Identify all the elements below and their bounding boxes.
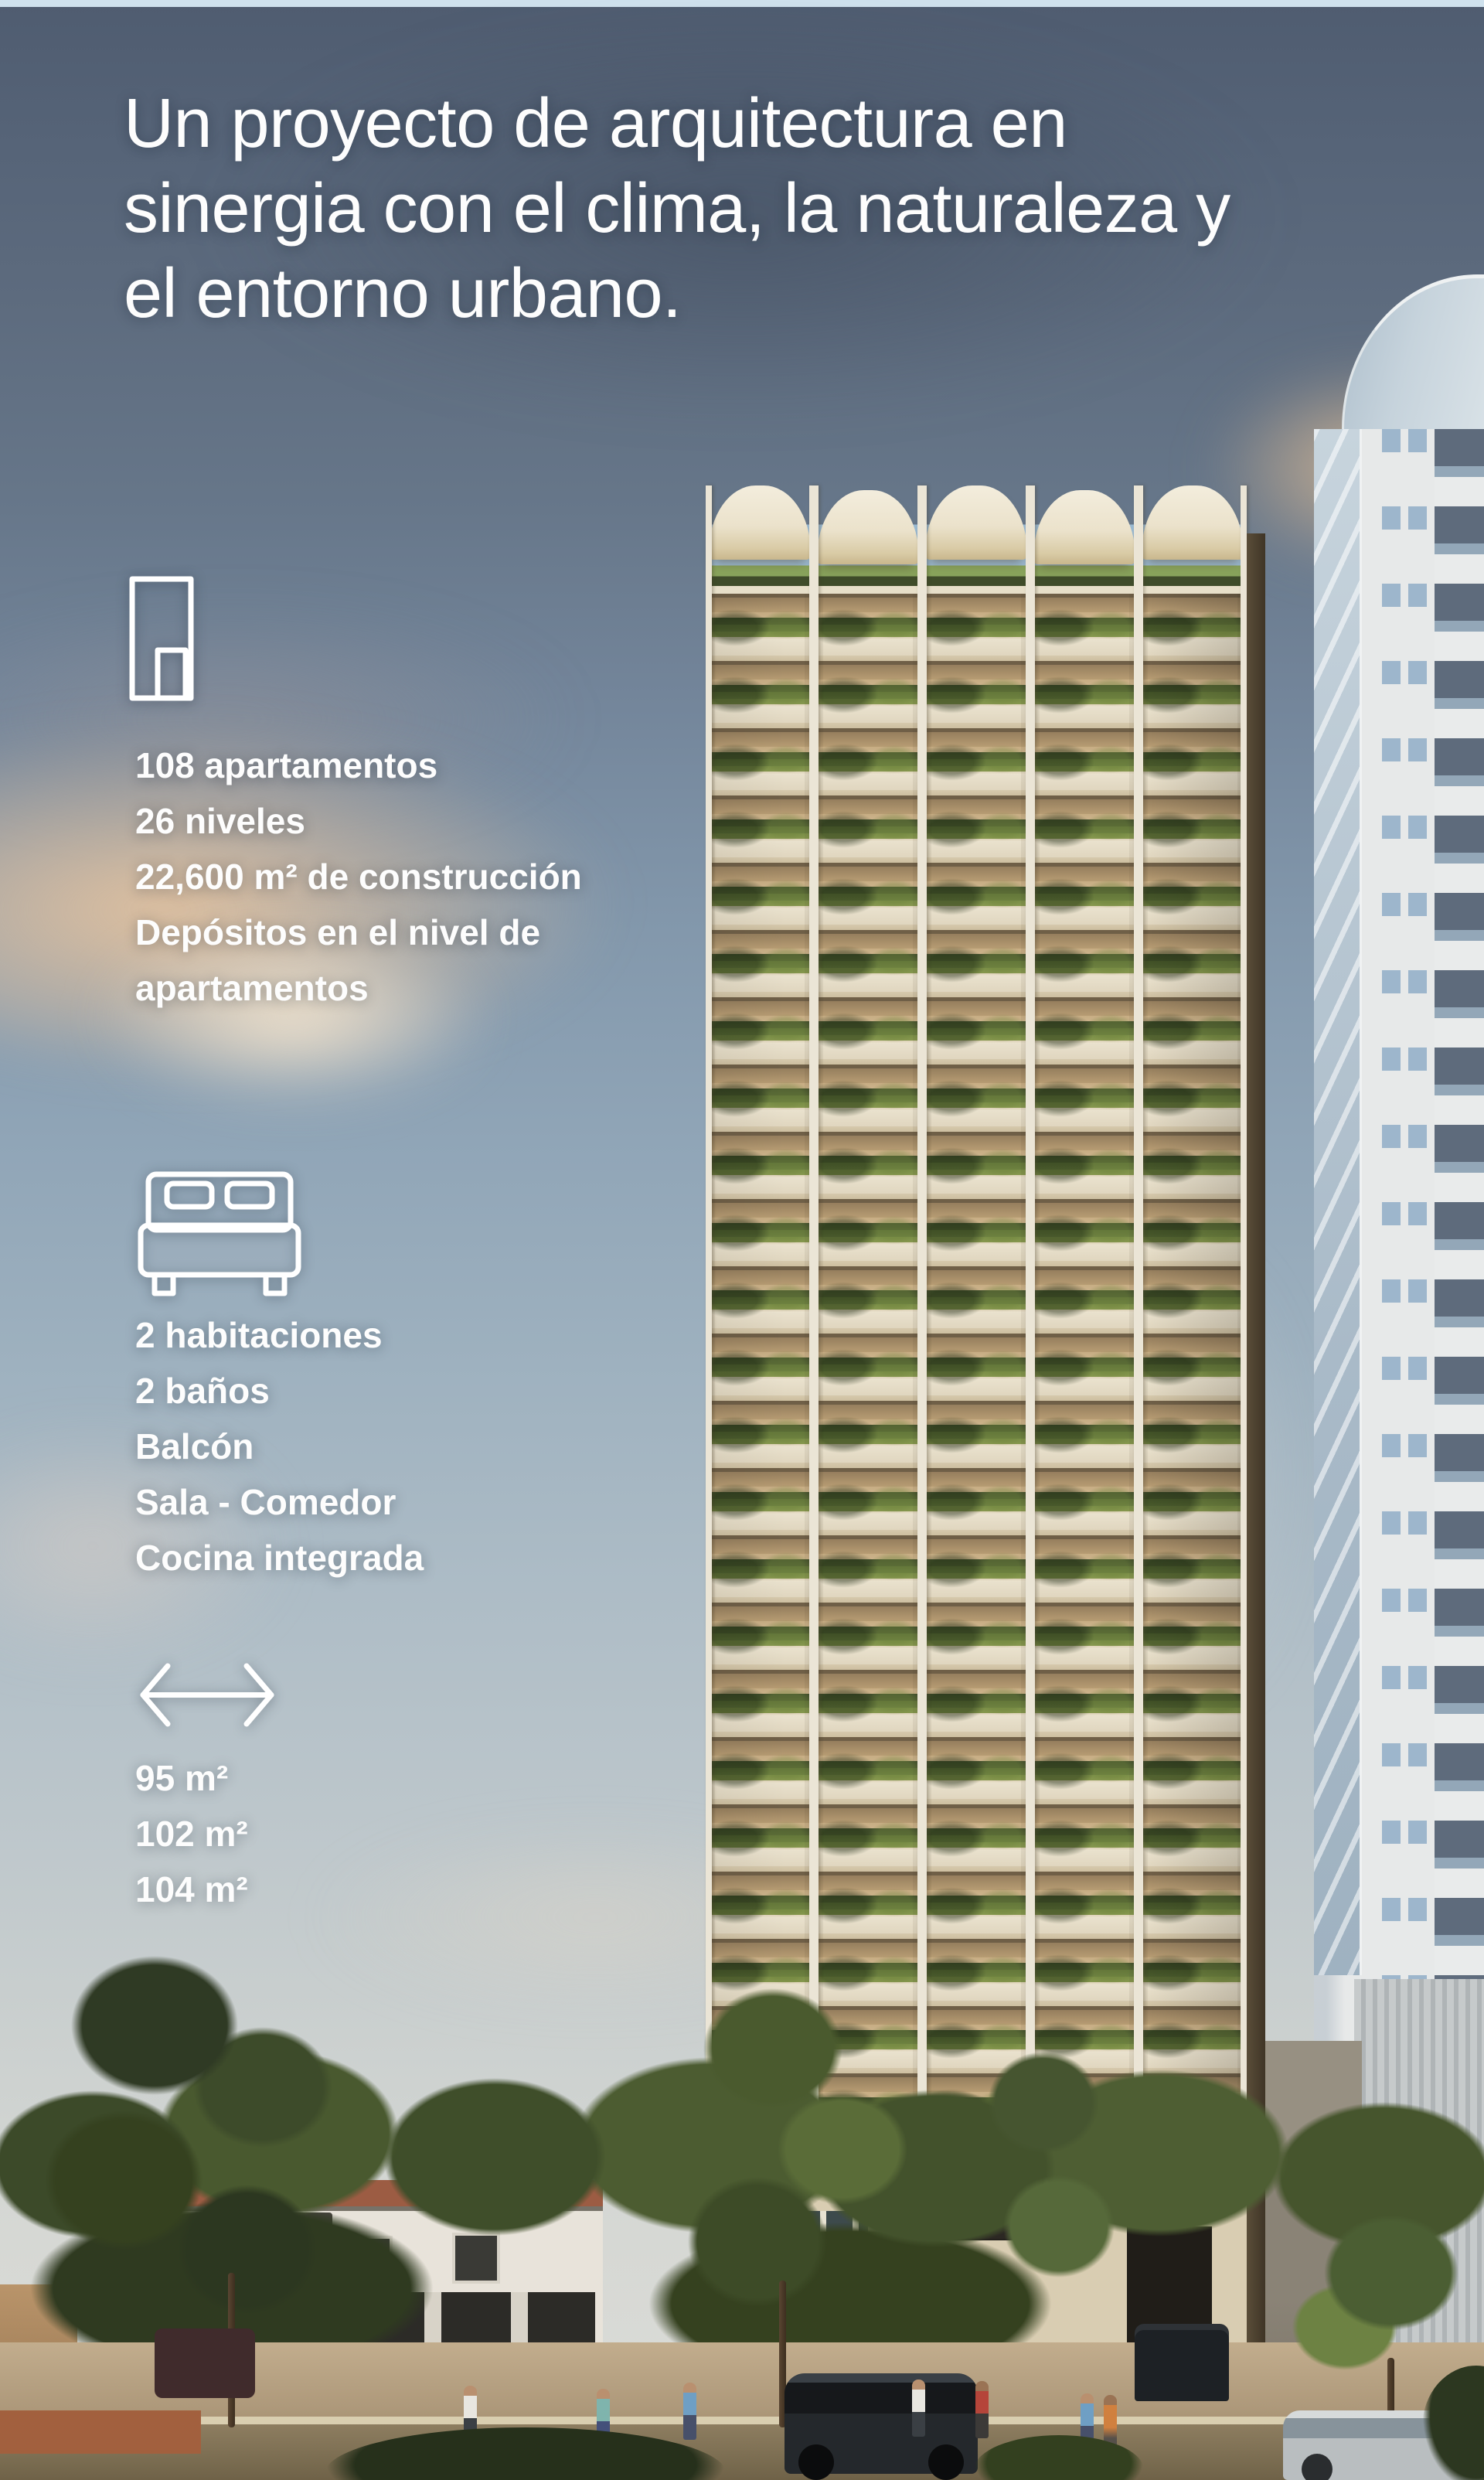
size-104: 104 m² <box>135 1862 630 1917</box>
section-unit-sizes: 95 m² 102 m² 104 m² <box>135 1750 630 1917</box>
size-102: 102 m² <box>135 1806 630 1862</box>
feat-cocina: Cocina integrada <box>135 1530 630 1586</box>
heading-line-2: sinergia con el clima, la naturaleza y <box>124 166 1283 251</box>
canopy-sail <box>1142 485 1244 560</box>
pedestrian <box>912 2380 925 2437</box>
parked-car <box>1135 2324 1229 2401</box>
section-building-stats: 108 apartamentos 26 niveles 22,600 m² de… <box>135 738 630 1016</box>
pedestrian <box>975 2381 989 2438</box>
curb-line <box>0 2417 1484 2424</box>
stat-niveles: 26 niveles <box>135 793 630 849</box>
feat-balcon: Balcón <box>135 1419 630 1474</box>
heading-line-3: el entorno urbano. <box>124 251 1283 336</box>
canopy-sail <box>925 485 1027 560</box>
heading-line-1: Un proyecto de arquitectura en <box>124 81 1283 166</box>
stat-depositos: Depósitos en el nivel de apartamentos <box>135 904 630 1016</box>
white-tower-glass-strip <box>1314 429 1362 1975</box>
brochure-page: Un proyecto de arquitectura en sinergia … <box>0 0 1484 2480</box>
tower-balcony-facade <box>706 594 1247 2165</box>
section-unit-features: 2 habitaciones 2 baños Balcón Sala - Com… <box>135 1307 630 1586</box>
building-icon <box>129 576 194 701</box>
background-treeline <box>0 1979 1484 2381</box>
page-title: Un proyecto de arquitectura en sinergia … <box>124 81 1283 336</box>
stat-apartamentos: 108 apartamentos <box>135 738 630 793</box>
size-95: 95 m² <box>135 1750 630 1806</box>
distant-car <box>155 2328 255 2398</box>
pedestrian <box>683 2383 696 2440</box>
stat-construccion: 22,600 m² de construcción <box>135 849 630 904</box>
suv-car <box>785 2373 978 2474</box>
canopy-sail <box>709 485 811 560</box>
width-arrow-icon <box>134 1658 281 1732</box>
feat-sala-comedor: Sala - Comedor <box>135 1474 630 1530</box>
feat-banos: 2 baños <box>135 1363 630 1419</box>
bed-icon <box>138 1171 301 1297</box>
tower-roof-canopy <box>706 485 1247 594</box>
terracotta-path <box>0 2410 201 2454</box>
feat-habitaciones: 2 habitaciones <box>135 1307 630 1363</box>
road <box>0 2424 1484 2480</box>
sky-top-strip <box>0 0 1484 7</box>
canopy-sail <box>1033 490 1135 564</box>
canopy-sail <box>817 490 919 564</box>
